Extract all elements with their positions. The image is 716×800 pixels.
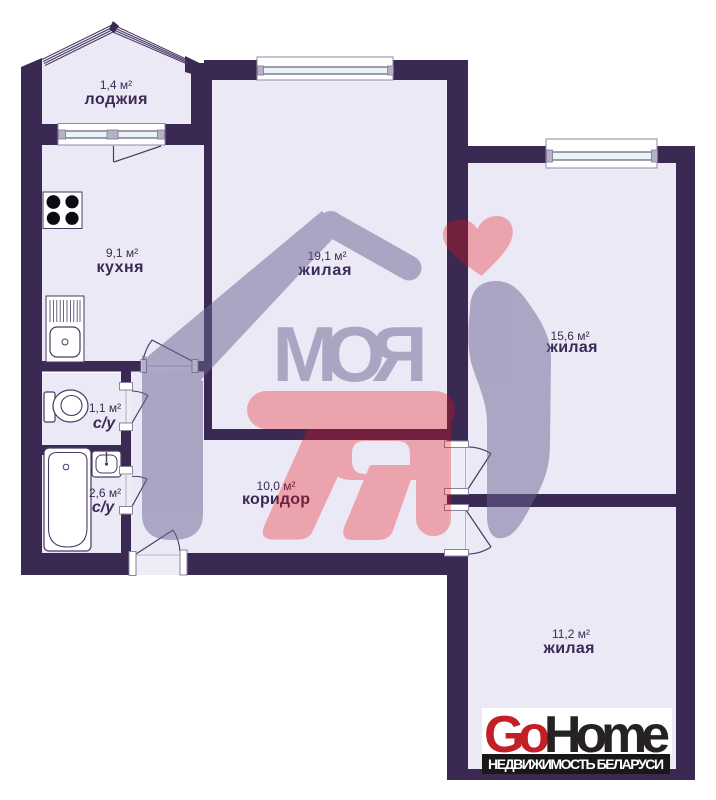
svg-text:1,1 м²: 1,1 м²: [89, 401, 121, 415]
svg-text:с/у: с/у: [93, 415, 116, 432]
svg-text:11,2 м²: 11,2 м²: [552, 627, 590, 641]
svg-text:НЕДВИЖИМОСТЬ БЕЛАРУСИ: НЕДВИЖИМОСТЬ БЕЛАРУСИ: [488, 756, 664, 772]
svg-text:9,1 м²: 9,1 м²: [106, 246, 138, 260]
svg-text:кухня: кухня: [97, 259, 144, 276]
svg-text:лоджия: лоджия: [85, 91, 148, 108]
svg-text:2,6 м²: 2,6 м²: [89, 486, 121, 500]
svg-text:МОЯ: МОЯ: [273, 310, 428, 398]
svg-text:с/у: с/у: [92, 499, 115, 516]
svg-text:1,4 м²: 1,4 м²: [100, 78, 132, 92]
svg-text:жилая: жилая: [546, 339, 598, 356]
svg-text:жилая: жилая: [543, 640, 595, 657]
